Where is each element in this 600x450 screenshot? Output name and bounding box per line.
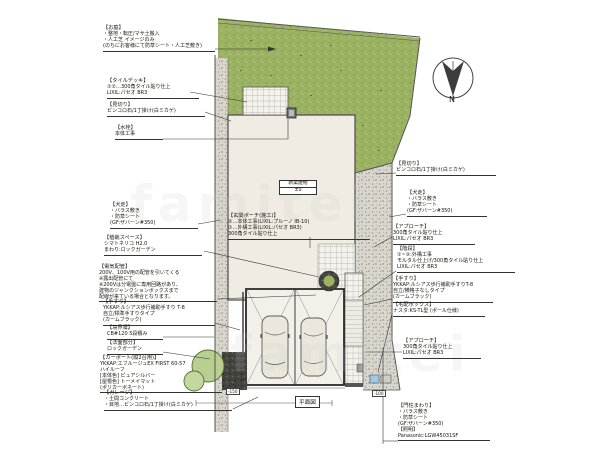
building-level: ±0 (280, 188, 316, 194)
water-tap-inner (289, 110, 294, 116)
annotation-right-2: 【アプローチ】300角タイル貼り仕上LIXIL:パセオ BR3 (393, 225, 475, 245)
annotation-line: ピンコロ石/1丁掛け(白ミカゲ) (107, 109, 205, 115)
annotation-right-3: 【階段】①~③:外構工事モルタル仕上げ/300角タイル貼り仕上LIXIL:パセオ… (397, 247, 515, 273)
annotation-right-0: 【見切り】ピンコロ石/1丁掛け(白ミカゲ) (396, 162, 496, 176)
annotation-right-7: 【門柱まわり】・バラス敷き・防草シート(GF:ザバーン#350)【照明】Pana… (398, 404, 490, 441)
annotation-left-10: 【カーポート(縦2台用)】YKKAP:エフルージュEX FIRST 60-57ハ… (100, 356, 222, 393)
annotation-line: 300角タイル貼り仕上 (228, 232, 370, 238)
annotation-left-1: 【タイルデッキ】①②…300角タイル貼り仕上LIXIL:パセオ BR3 (107, 79, 199, 99)
annotation-line: ・目地…ピンコロ石/1丁掛け(白ミカゲ) (104, 403, 232, 409)
annotation-line: CB#120 5段積み (107, 332, 163, 338)
site-plan-page: famitei famitei 新築建物 ±0 平面図 -150 -100 N … (0, 0, 600, 450)
tile-deck (243, 87, 288, 115)
car-icon (299, 318, 327, 376)
delivery-box (370, 375, 379, 383)
annotation-center-0: 【玄関ポーチ(施工)】②…本体工事(LIXIL:プルーノ IB-10)①…外構工… (228, 214, 370, 240)
annotation-left-2: 【見切り】ピンコロ石/1丁掛け(白ミカゲ) (107, 103, 205, 117)
annotation-line: まわり:ロックガーデン (104, 248, 202, 254)
annotation-left-6: 【電気配管】200V、100V用の配管を引いてくる※露出配管にて※200Vは分電… (99, 265, 217, 302)
north-label: N (449, 95, 455, 104)
annotation-right-5: 【宅配ボックス】ナスタ:KS-TL型 (ポール仕様) (393, 303, 485, 317)
gate-post (357, 364, 363, 372)
building-label: 新築建物 ±0 (279, 180, 317, 195)
car-icon (260, 316, 289, 378)
annotation-line: (カームブラック) (393, 295, 493, 301)
gate-wall (345, 383, 363, 387)
annotation-left-11: 【ガレージ】・土間コンクリート・目地…ピンコロ石/1丁掛け(白ミカゲ) (104, 391, 232, 411)
annotation-left-4: 【犬走】・バラス敷き・防草シート(GF:ザバーン#350) (110, 203, 198, 229)
annotation-line: (カームブラック) (103, 318, 215, 324)
annotation-line: ナスタ:KS-TL型 (ポール仕様) (393, 309, 485, 315)
annotation-right-6: 【アプローチ】300角タイル貼り仕上LIXIL:パセオ BR3 (403, 339, 481, 359)
annotation-line: (GF:ザバーン#350) (110, 221, 198, 227)
annotation-line: LIXIL:パセオ BR3 (397, 265, 515, 271)
north-compass-icon (433, 58, 473, 100)
annotation-line: 本体工事 (115, 132, 163, 138)
stair-treads (345, 300, 363, 346)
annotation-left-8: 【境界塀】CB#120 5段積み (107, 326, 163, 340)
annotation-line: LIXIL:パセオ BR3 (403, 351, 481, 357)
annotation-line: ロックガーデン (107, 347, 163, 353)
annotation-line: LIXIL:パセオ BR3 (107, 91, 199, 97)
annotation-right-4: 【手すり】YKKAP:ルシアス歩行補助手すりT-8自立/横格子なしタイプ(カーム… (393, 277, 493, 303)
planting-circle-center (324, 276, 335, 287)
annotation-left-3: 【水栓】本体工事 (115, 126, 163, 140)
annotation-line: ピンコロ石/1丁掛け(白ミカゲ) (396, 168, 496, 174)
annotation-right-1: 【犬走】・バラス敷き・防草シート(GF:ザバーン#350) (407, 191, 487, 217)
annotation-left-7: 【手すり】YKKAP:ルシアス歩行補助手すり T-8自立/標準手すりタイプ(カー… (103, 300, 215, 326)
annotation-line: LIXIL:パセオ BR3 (393, 237, 475, 243)
dimension-tag: -100 (372, 390, 386, 397)
annotation-left-0: 【お庭】・整地・転圧/マサ土搬入・人工芝 イメージのみ(のちにお客様にて防草シー… (103, 26, 215, 52)
gate-pillar (381, 375, 391, 383)
dimension-tag: -150 (226, 388, 240, 395)
annotation-line: (GF:ザバーン#350) (407, 209, 487, 215)
plan-title: 平面図 (295, 396, 320, 408)
annotation-left-5: 【植栽スペース】シマトネリコ H2.0まわり:ロックガーデン (104, 236, 202, 256)
annotation-left-9: 【法面部分】ロックガーデン (107, 341, 163, 355)
annotation-line: Panasonic:LGW45031SF (398, 434, 490, 440)
annotation-line: (のちにお客様にて防草シート・人工芝敷き) (103, 44, 215, 50)
